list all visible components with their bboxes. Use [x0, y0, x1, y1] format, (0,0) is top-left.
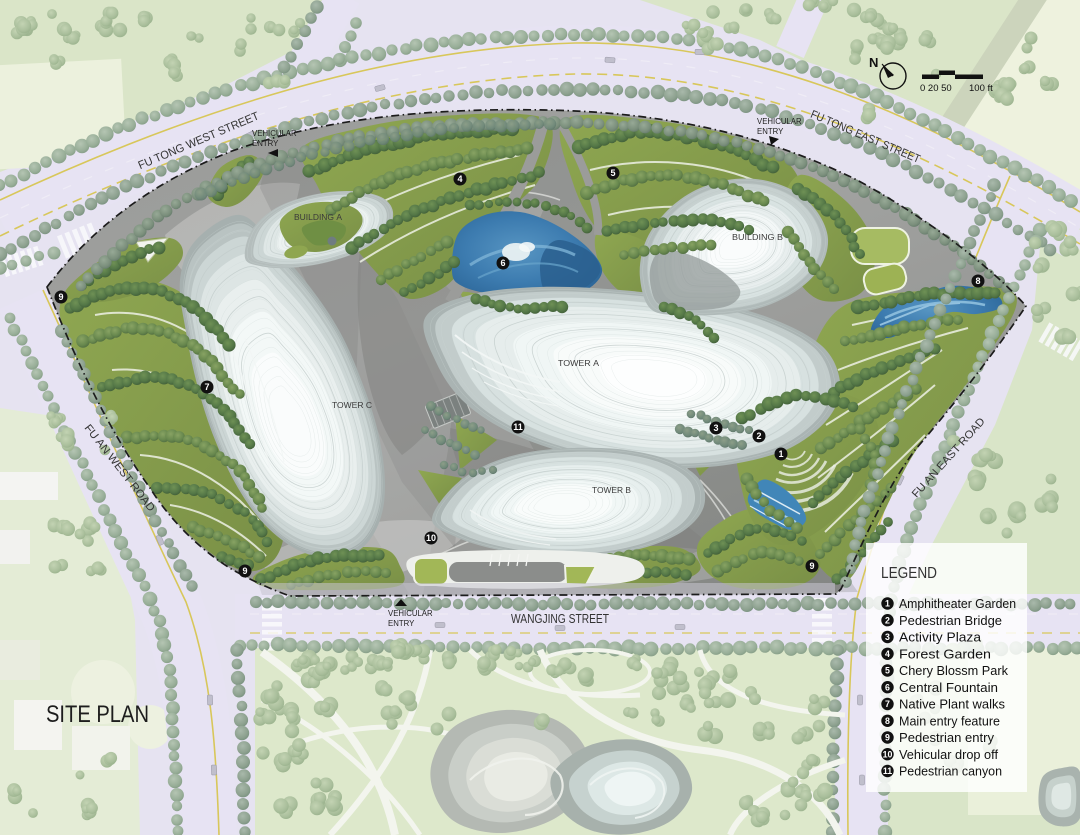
svg-text:4: 4 [457, 174, 462, 184]
svg-text:9: 9 [242, 566, 247, 576]
svg-text:6: 6 [500, 258, 505, 268]
svg-text:4: 4 [885, 649, 890, 659]
svg-text:11: 11 [883, 766, 892, 776]
svg-text:ENTRY: ENTRY [757, 127, 784, 136]
svg-text:TOWER A: TOWER A [558, 358, 599, 368]
svg-text:9: 9 [885, 733, 890, 743]
svg-text:9: 9 [58, 292, 63, 302]
svg-text:1: 1 [885, 599, 890, 609]
svg-text:10: 10 [883, 749, 893, 759]
svg-text:VEHICULAR: VEHICULAR [388, 609, 433, 618]
svg-text:BUILDING B: BUILDING B [732, 233, 783, 242]
svg-text:5: 5 [610, 168, 615, 178]
svg-text:8: 8 [975, 276, 980, 286]
svg-text:Chery Blossm Park: Chery Blossm Park [899, 663, 1008, 678]
svg-text:3: 3 [713, 423, 718, 433]
svg-text:Pedestrian Bridge: Pedestrian Bridge [899, 613, 1002, 628]
svg-text:0 20 50: 0 20 50 [920, 83, 952, 94]
svg-text:100 ft: 100 ft [969, 83, 993, 94]
svg-text:TOWER B: TOWER B [592, 485, 631, 495]
svg-text:2: 2 [885, 615, 890, 625]
svg-text:Central Fountain: Central Fountain [899, 680, 998, 695]
svg-text:TOWER C: TOWER C [332, 400, 372, 410]
svg-text:Vehicular drop off: Vehicular drop off [899, 747, 998, 762]
svg-text:WANGJING STREET: WANGJING STREET [511, 612, 609, 626]
svg-text:7: 7 [885, 699, 890, 709]
svg-text:Amphitheater Garden: Amphitheater Garden [899, 596, 1016, 611]
svg-text:ENTRY: ENTRY [252, 139, 279, 148]
svg-text:8: 8 [885, 716, 890, 726]
svg-text:10: 10 [426, 533, 436, 543]
svg-text:7: 7 [204, 382, 209, 392]
svg-text:N: N [869, 55, 878, 70]
svg-text:LEGEND: LEGEND [881, 565, 937, 582]
svg-text:VEHICULAR: VEHICULAR [252, 129, 297, 138]
svg-text:Forest Garden: Forest Garden [899, 646, 991, 661]
svg-text:9: 9 [809, 561, 814, 571]
svg-text:1: 1 [778, 449, 783, 459]
svg-text:Pedestrian canyon: Pedestrian canyon [899, 764, 1002, 779]
svg-text:11: 11 [513, 422, 523, 432]
svg-text:VEHICULAR: VEHICULAR [757, 117, 802, 126]
svg-text:6: 6 [885, 682, 890, 692]
svg-text:Main entry feature: Main entry feature [899, 713, 1000, 728]
svg-text:Activity Plaza: Activity Plaza [899, 630, 982, 645]
svg-text:ENTRY: ENTRY [388, 619, 415, 628]
svg-text:Native Plant walks: Native Plant walks [899, 697, 1005, 712]
svg-text:3: 3 [885, 632, 890, 642]
svg-text:Pedestrian entry: Pedestrian entry [899, 730, 994, 745]
svg-text:5: 5 [885, 666, 890, 676]
svg-text:SITE PLAN: SITE PLAN [46, 701, 149, 728]
svg-text:BUILDING A: BUILDING A [294, 213, 343, 222]
svg-text:2: 2 [756, 431, 761, 441]
